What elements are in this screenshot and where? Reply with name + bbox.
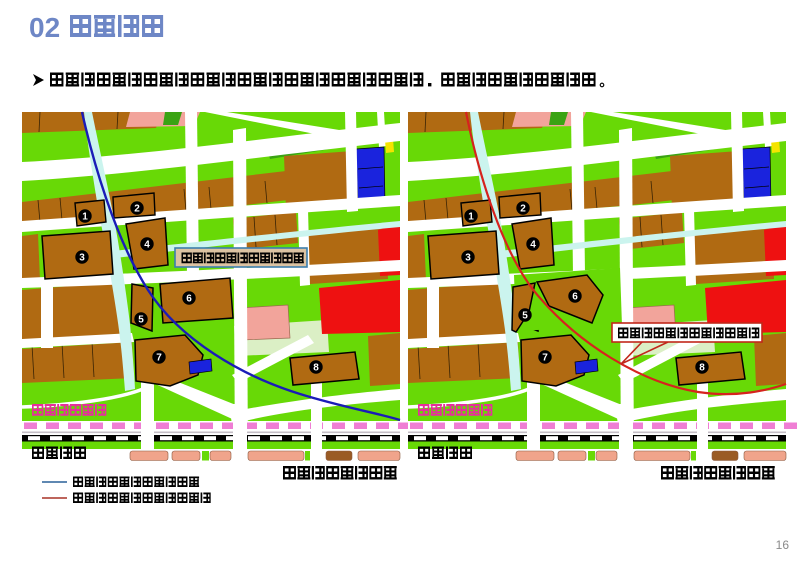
svg-text:5: 5	[522, 311, 528, 322]
svg-text:02: 02	[29, 12, 60, 43]
svg-text:6: 6	[572, 292, 578, 303]
svg-text:16: 16	[776, 538, 790, 552]
